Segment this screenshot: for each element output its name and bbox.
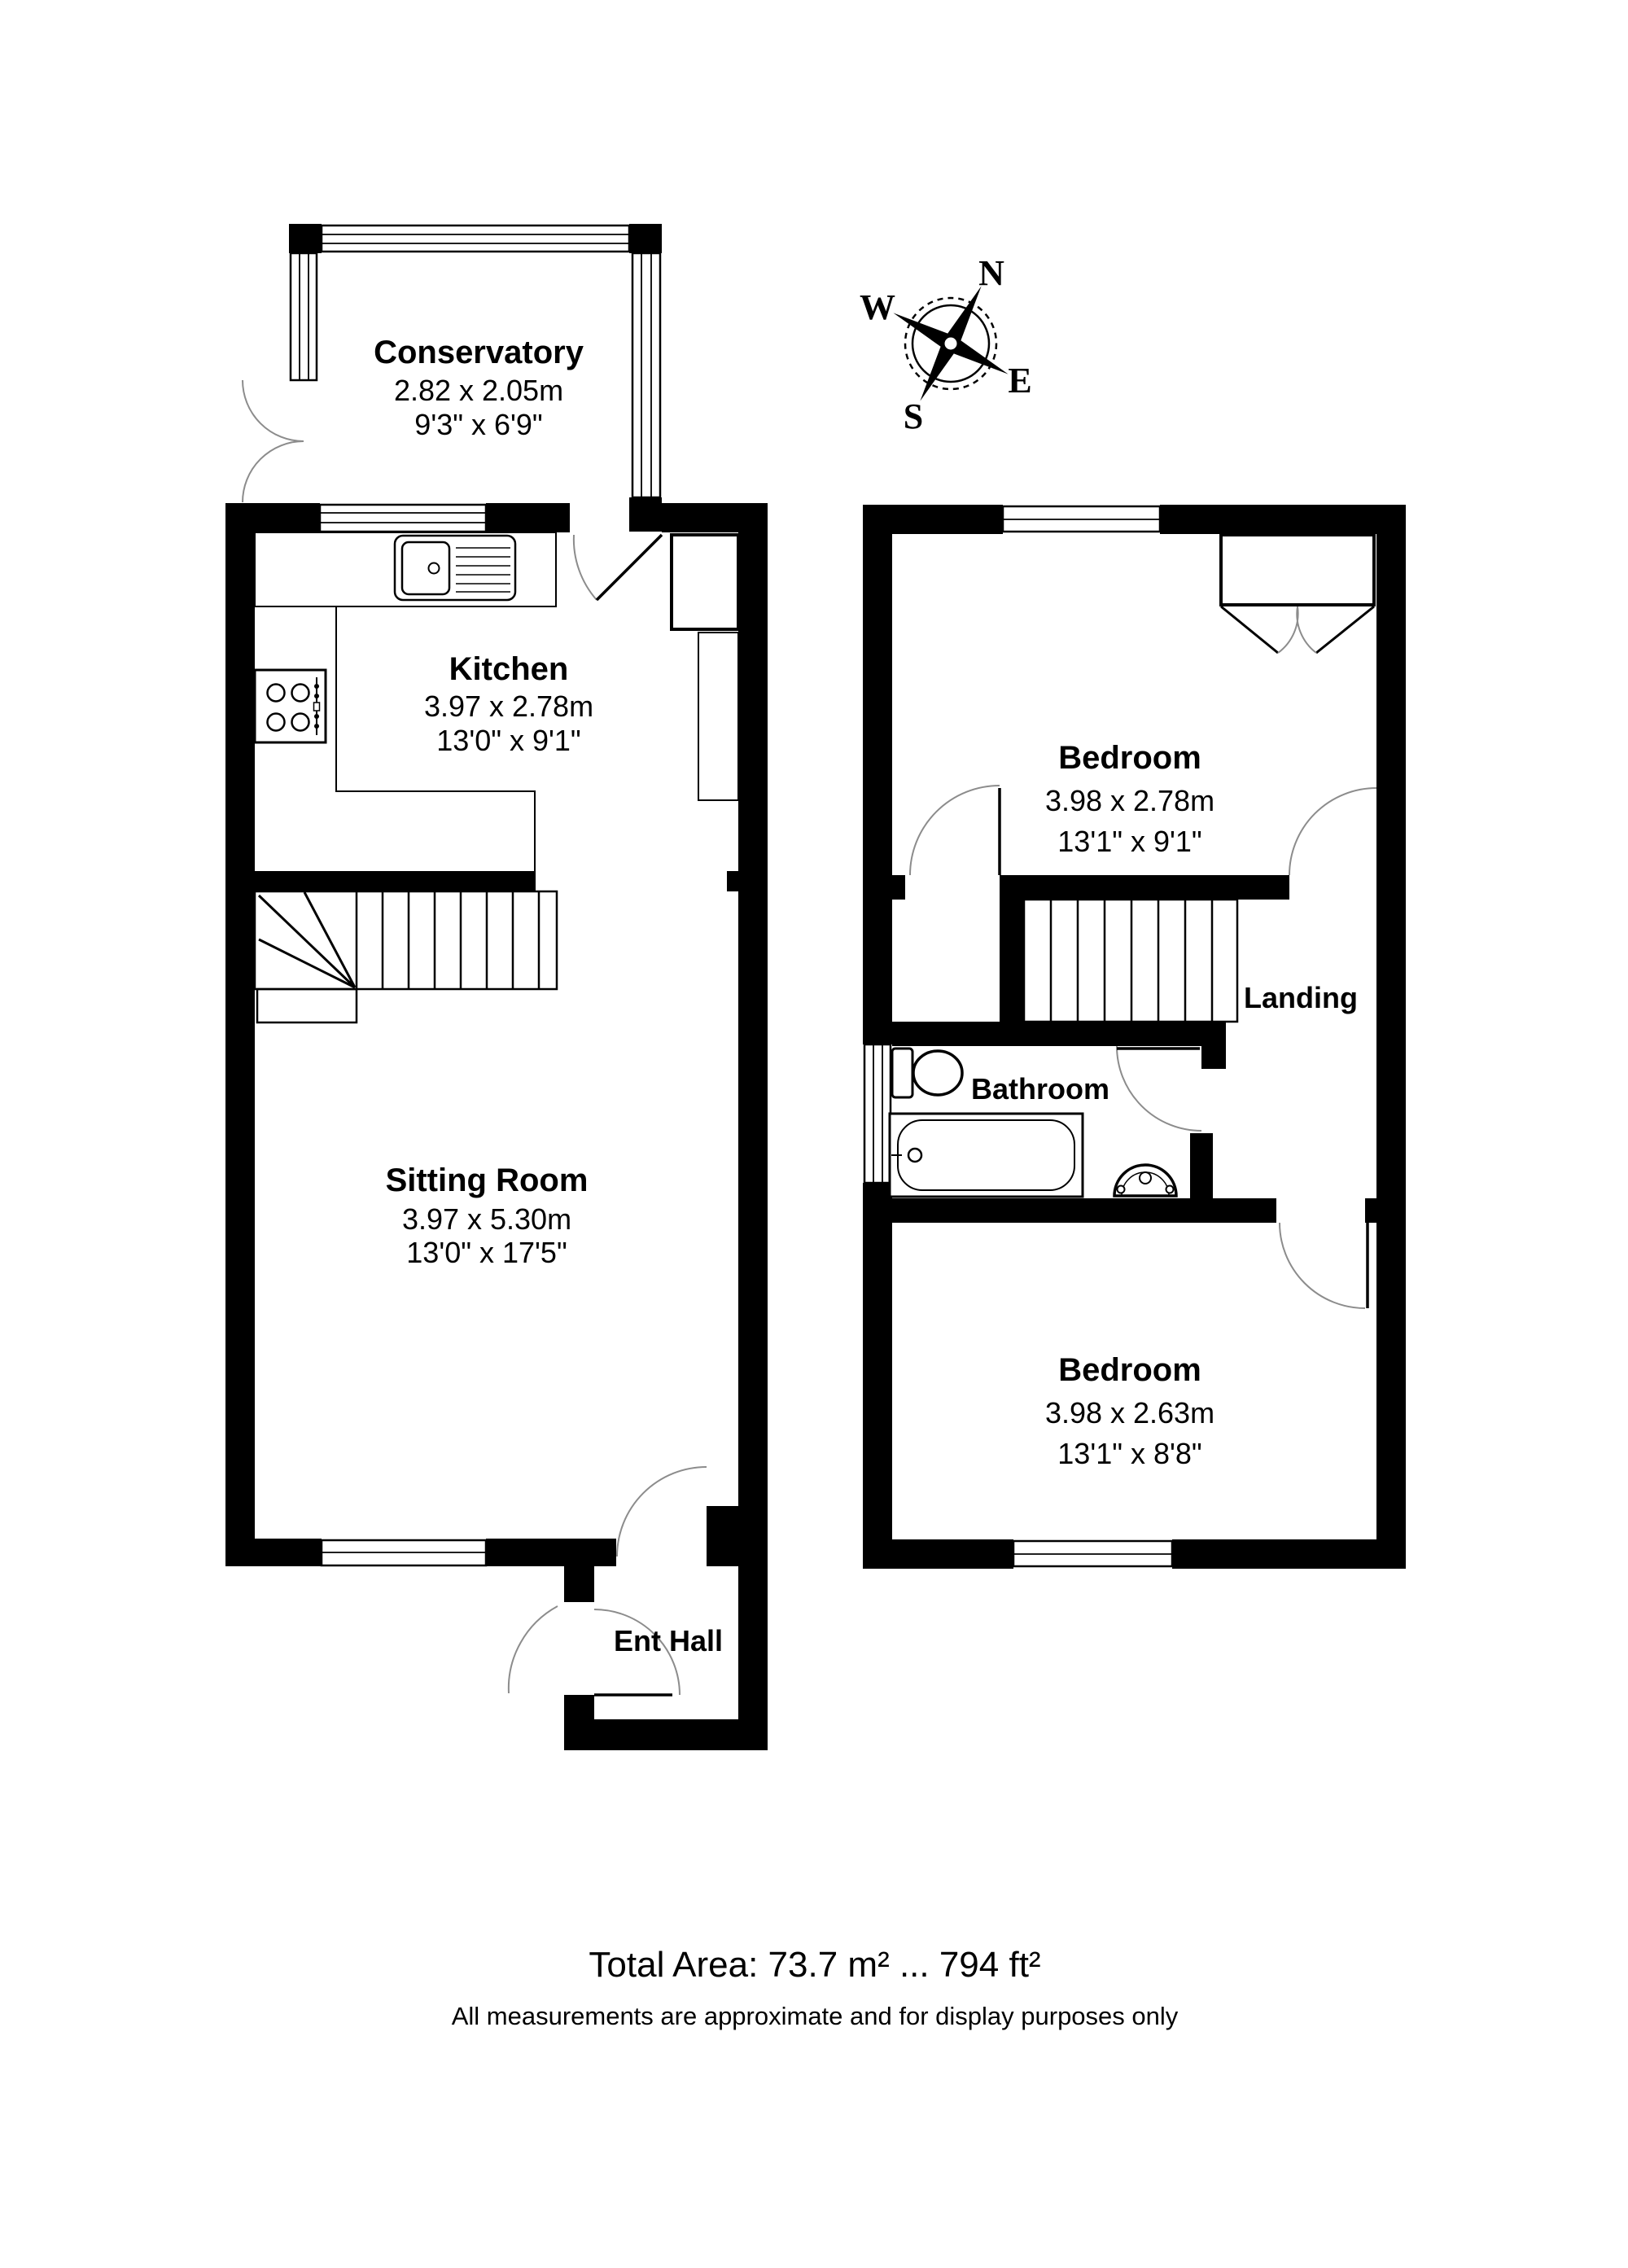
floorplan-canvas: Conservatory 2.82 x 2.05m 9'3" x 6'9" Ki… <box>0 0 1628 2268</box>
kitchen-unit <box>698 633 738 800</box>
conservatory-window-right <box>632 253 660 497</box>
bedroom1-door-arc <box>910 786 1000 875</box>
toilet-icon <box>892 1049 962 1097</box>
conservatory-french-door-arc-bottom <box>243 441 304 502</box>
kitchen-window <box>320 505 486 532</box>
kitchen-door-leaf <box>597 535 662 600</box>
bedroom1-metric: 3.98 x 2.78m <box>1045 784 1214 817</box>
compass-s: S <box>904 396 923 436</box>
ent-hall-label: Ent Hall <box>614 1624 723 1657</box>
total-area-text: Total Area: 73.7 m² ... 794 ft² <box>589 1945 1040 1985</box>
kitchen-metric: 3.97 x 2.78m <box>424 690 593 723</box>
kitchen-door-arc <box>574 535 597 600</box>
bathroom-window <box>864 1044 891 1183</box>
compass-e: E <box>1008 361 1031 401</box>
bedroom1-door2-arc <box>1289 788 1376 875</box>
compass-n: N <box>978 253 1004 293</box>
conservatory-imperial: 9'3" x 6'9" <box>414 408 542 441</box>
compass-hub <box>943 336 958 351</box>
floorplan-page: Conservatory 2.82 x 2.05m 9'3" x 6'9" Ki… <box>0 0 1628 2268</box>
bedroom2-label: Bedroom <box>1058 1352 1201 1388</box>
bedroom2-imperial: 13'1" x 8'8" <box>1057 1437 1201 1470</box>
first-floor-stairs <box>1024 900 1237 1022</box>
bedroom2-door-arc <box>1280 1223 1365 1308</box>
compass-w: W <box>860 287 895 327</box>
sitting-room-label: Sitting Room <box>386 1162 589 1198</box>
bathroom-label: Bathroom <box>971 1072 1109 1106</box>
compass-rose: N W E S <box>860 253 1032 436</box>
bedroom1-label: Bedroom <box>1058 740 1201 776</box>
bathroom-fittings <box>890 1049 1176 1197</box>
basin-icon <box>1114 1165 1176 1196</box>
sink-icon <box>395 536 515 600</box>
conservatory-french-door-arc-top <box>243 380 304 441</box>
first-floor-plan: Bedroom 3.98 x 2.78m 13'1" x 9'1" Landin… <box>863 505 1406 1569</box>
disclaimer-text: All measurements are approximate and for… <box>452 2002 1179 2030</box>
bedroom1-imperial: 13'1" x 9'1" <box>1057 825 1201 858</box>
first-floor-labels: Bedroom 3.98 x 2.78m 13'1" x 9'1" Landin… <box>971 740 1358 1470</box>
bathroom-door-arc <box>1117 1046 1201 1131</box>
conservatory-label: Conservatory <box>374 335 584 370</box>
conservatory-metric: 2.82 x 2.05m <box>394 374 563 407</box>
bedroom2-metric: 3.98 x 2.63m <box>1045 1396 1214 1430</box>
sitting-room-metric: 3.97 x 5.30m <box>402 1202 571 1236</box>
conservatory-window-left <box>291 253 317 380</box>
stair-bottom-step <box>257 989 357 1022</box>
kitchen-imperial: 13'0" x 9'1" <box>436 724 580 757</box>
bathtub-icon <box>890 1114 1083 1197</box>
wardrobe <box>1221 535 1374 653</box>
landing-label: Landing <box>1244 981 1358 1014</box>
footer: Total Area: 73.7 m² ... 794 ft² All meas… <box>452 1945 1179 2030</box>
ground-floor-plan: Conservatory 2.82 x 2.05m 9'3" x 6'9" Ki… <box>225 224 768 1750</box>
sitting-room-imperial: 13'0" x 17'5" <box>406 1236 567 1269</box>
sitting-room-door-arc <box>617 1467 707 1557</box>
hob-icon <box>255 670 326 742</box>
ground-floor-walls <box>225 224 768 1750</box>
ground-floor-stairs <box>255 891 557 1022</box>
front-door-outer-arc <box>509 1606 558 1693</box>
kitchen-cupboard <box>672 535 738 629</box>
conservatory-window-top <box>322 225 629 252</box>
first-floor-doors <box>910 786 1376 1308</box>
stair-winders <box>259 892 355 987</box>
kitchen-label: Kitchen <box>449 651 569 687</box>
